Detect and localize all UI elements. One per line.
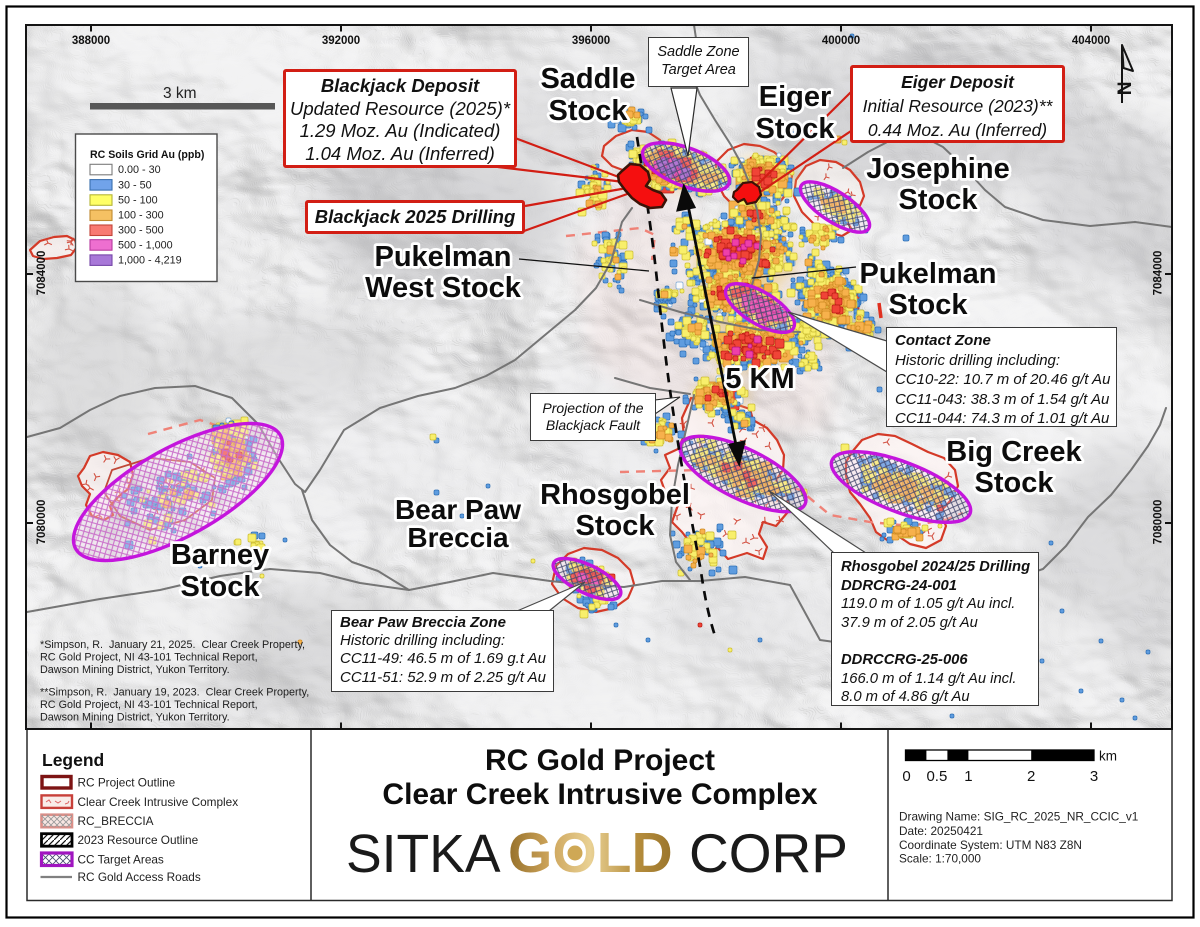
svg-text:392000: 392000 [322, 35, 360, 47]
svg-text:West Stock: West Stock [365, 272, 522, 304]
svg-text:Clear Creek Intrusive Complex: Clear Creek Intrusive Complex [78, 795, 239, 809]
svg-text:2023 Resource Outline: 2023 Resource Outline [78, 833, 199, 847]
svg-text:50 - 100: 50 - 100 [118, 195, 158, 207]
svg-text:Eiger: Eiger [759, 81, 832, 113]
svg-text:Coordinate System: UTM N83 Z8N: Coordinate System: UTM N83 Z8N [899, 838, 1082, 852]
svg-text:N: N [1113, 82, 1134, 96]
svg-text:5 KM: 5 KM [725, 363, 794, 395]
svg-text:Bear Paw: Bear Paw [395, 494, 521, 525]
svg-text:CORP: CORP [689, 822, 848, 884]
svg-text:Stock: Stock [756, 113, 836, 145]
svg-text:*Simpson, R. January 21, 2025: *Simpson, R. January 21, 2025. Clear Cre… [40, 639, 305, 651]
svg-text:Stock: Stock [899, 184, 979, 216]
svg-text:Josephine: Josephine [866, 153, 1009, 185]
svg-text:7084000: 7084000 [1153, 251, 1165, 296]
svg-text:km: km [1099, 749, 1117, 764]
svg-text:30 - 50: 30 - 50 [118, 179, 152, 191]
svg-text:7080000: 7080000 [36, 500, 48, 545]
svg-text:RC Gold Project, NI 43-101 Tec: RC Gold Project, NI 43-101 Technical Rep… [40, 652, 258, 664]
svg-text:RC Soils Grid Au (ppb): RC Soils Grid Au (ppb) [90, 149, 204, 161]
svg-text:Date: 20250421: Date: 20250421 [899, 824, 983, 838]
svg-text:Big Creek: Big Creek [946, 436, 1082, 468]
svg-text:400000: 400000 [822, 35, 860, 47]
svg-text:3: 3 [1090, 768, 1098, 785]
svg-text:Dawson Mining District, Yukon: Dawson Mining District, Yukon Territory. [40, 664, 230, 676]
svg-text:Stock: Stock [549, 95, 629, 127]
svg-text:RC Gold Access Roads: RC Gold Access Roads [78, 870, 201, 884]
svg-text:2: 2 [1027, 768, 1035, 785]
svg-text:Stock: Stock [889, 289, 969, 321]
svg-text:Scale: 1:70,000: Scale: 1:70,000 [899, 852, 981, 866]
svg-text:Drawing Name: SIG_RC_2025_NR_C: Drawing Name: SIG_RC_2025_NR_CCIC_v1 [899, 810, 1138, 824]
svg-text:0.5: 0.5 [926, 768, 947, 785]
svg-text:GOLD: GOLD [508, 821, 673, 885]
svg-text:Rhosgobel: Rhosgobel [540, 479, 690, 511]
svg-text:RC Gold Project, NI 43-101 Tec: RC Gold Project, NI 43-101 Technical Rep… [40, 699, 258, 711]
svg-text:Stock: Stock [181, 571, 261, 603]
svg-text:RC Project Outline: RC Project Outline [78, 776, 176, 790]
svg-text:7084000: 7084000 [36, 251, 48, 296]
svg-text:RC_BRECCIA: RC_BRECCIA [78, 814, 154, 828]
svg-text:**Simpson, R. January 19, 202: **Simpson, R. January 19, 2023. Clear Cr… [40, 687, 309, 699]
svg-text:500 - 1,000: 500 - 1,000 [118, 239, 173, 251]
svg-text:Clear Creek Intrusive Complex: Clear Creek Intrusive Complex [382, 778, 817, 811]
svg-text:Legend: Legend [42, 750, 104, 770]
svg-text:404000: 404000 [1072, 35, 1110, 47]
svg-text:Stock: Stock [975, 467, 1055, 499]
svg-text:300 - 500: 300 - 500 [118, 225, 164, 237]
svg-text:1,000 - 4,219: 1,000 - 4,219 [118, 255, 182, 267]
svg-text:SITKA: SITKA [346, 825, 501, 884]
svg-text:0.00 - 30: 0.00 - 30 [118, 164, 161, 176]
svg-text:7080000: 7080000 [1153, 500, 1165, 545]
svg-text:Stock: Stock [576, 510, 656, 542]
svg-text:Breccia: Breccia [407, 522, 509, 553]
svg-text:Pukelman: Pukelman [375, 241, 512, 273]
svg-text:0: 0 [902, 768, 910, 785]
svg-text:Saddle: Saddle [540, 63, 635, 95]
svg-text:CC Target Areas: CC Target Areas [78, 853, 164, 867]
svg-text:388000: 388000 [72, 35, 110, 47]
svg-text:100 - 300: 100 - 300 [118, 210, 164, 222]
svg-text:Pukelman: Pukelman [860, 258, 997, 290]
svg-text:396000: 396000 [572, 35, 610, 47]
svg-text:Barney: Barney [171, 539, 269, 571]
svg-text:1: 1 [964, 768, 972, 785]
svg-text:3 km: 3 km [163, 85, 197, 102]
svg-text:Dawson Mining District, Yukon: Dawson Mining District, Yukon Territory. [40, 712, 230, 724]
svg-text:RC Gold Project: RC Gold Project [485, 744, 715, 777]
